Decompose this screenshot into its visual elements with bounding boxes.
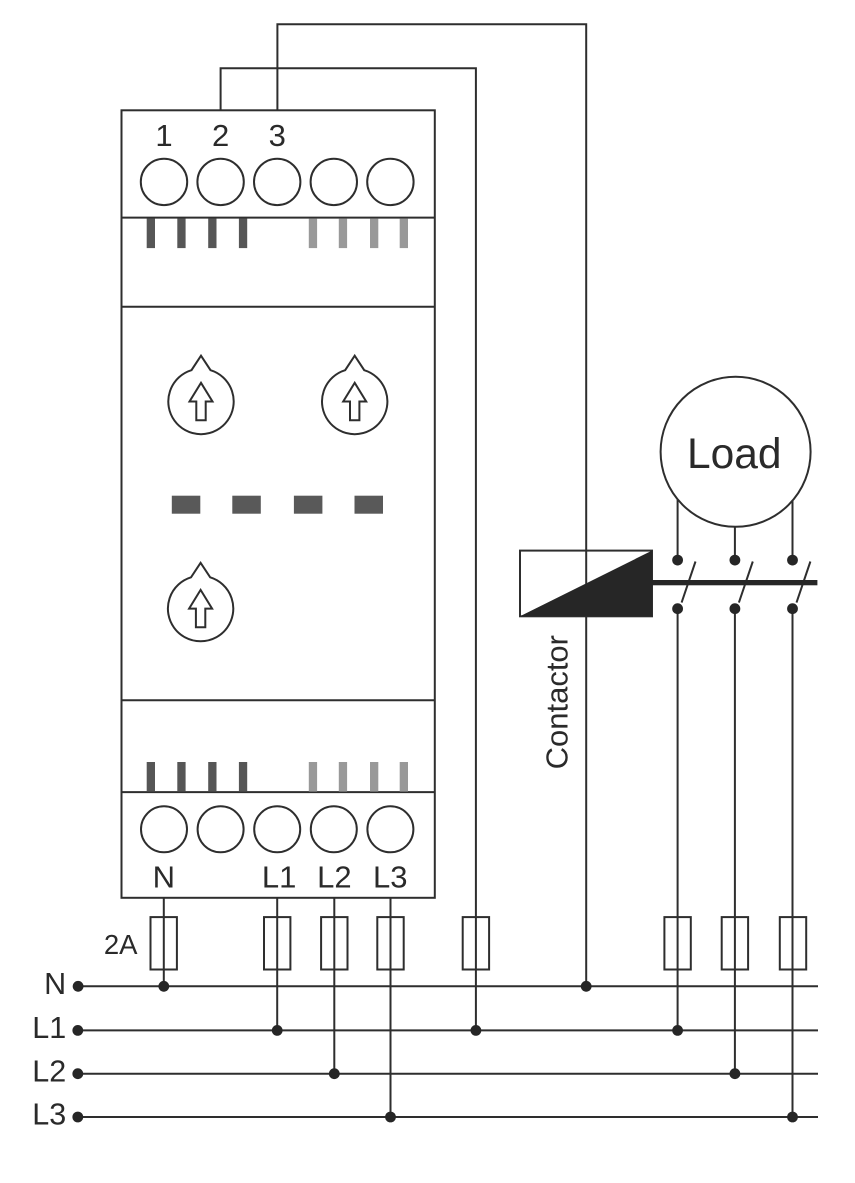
svg-text:L1: L1: [262, 859, 296, 894]
svg-text:Load: Load: [687, 431, 782, 478]
svg-text:Contactor: Contactor: [539, 635, 574, 769]
svg-text:L3: L3: [373, 859, 407, 894]
svg-text:L3: L3: [32, 1098, 66, 1132]
svg-text:N: N: [44, 967, 66, 1001]
svg-text:L1: L1: [32, 1011, 66, 1045]
svg-text:L2: L2: [32, 1054, 66, 1088]
svg-text:1: 1: [155, 118, 172, 153]
svg-text:L2: L2: [317, 859, 351, 894]
svg-text:2: 2: [212, 118, 229, 153]
svg-text:2A: 2A: [104, 929, 138, 960]
svg-text:3: 3: [269, 118, 286, 153]
svg-text:N: N: [153, 859, 175, 894]
